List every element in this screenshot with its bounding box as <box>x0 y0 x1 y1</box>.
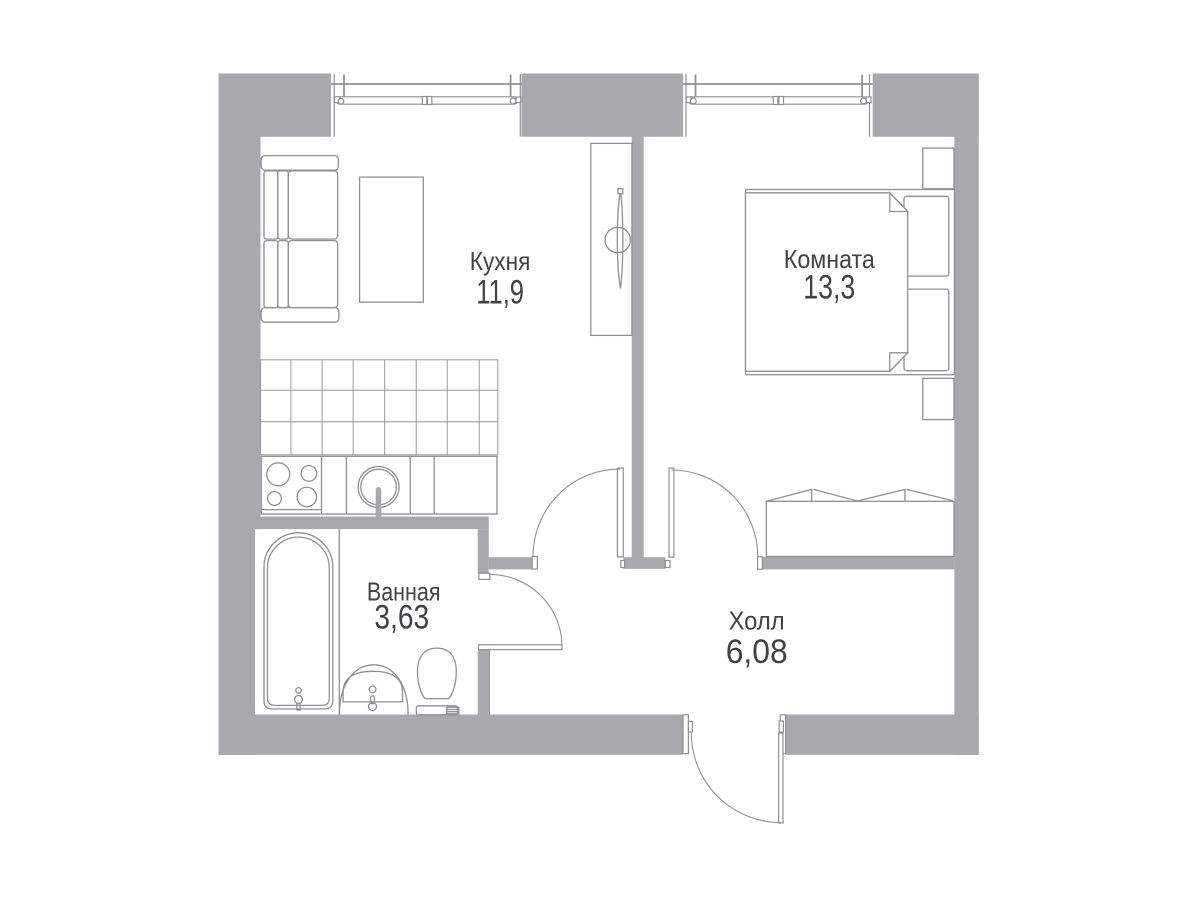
svg-text:6,08: 6,08 <box>726 633 788 671</box>
svg-text:3,63: 3,63 <box>374 599 429 637</box>
svg-text:13,3: 13,3 <box>803 268 855 306</box>
svg-text:Холл: Холл <box>729 606 785 636</box>
svg-text:Кухня: Кухня <box>470 246 531 276</box>
svg-text:11,9: 11,9 <box>476 274 524 312</box>
